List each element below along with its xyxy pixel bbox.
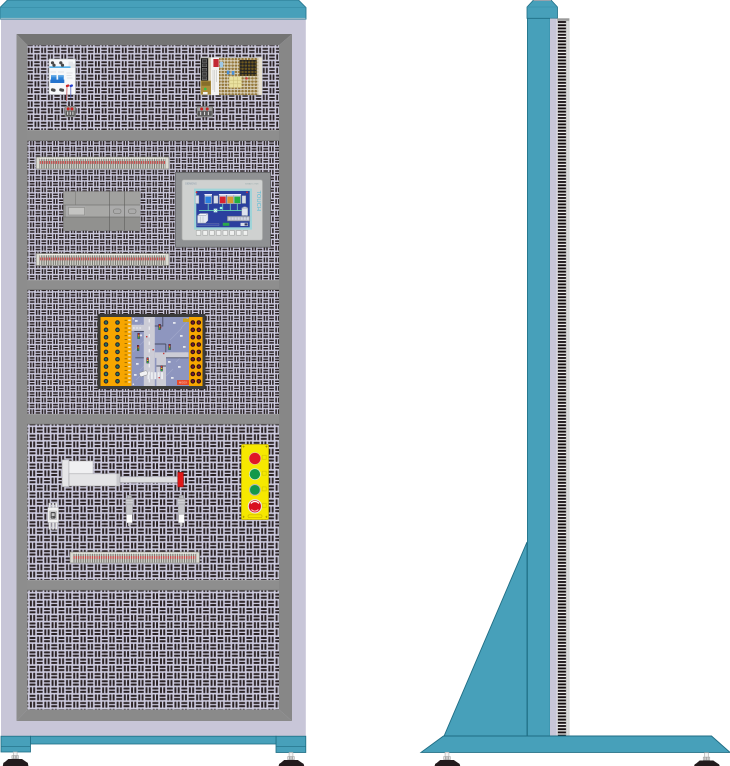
svg-text:TOUCH: TOUCH: [255, 191, 261, 212]
svg-text:SIMATIC HMI: SIMATIC HMI: [245, 183, 259, 186]
svg-text:MGGX: MGGX: [179, 381, 187, 385]
svg-text:SIEMENS: SIEMENS: [185, 182, 197, 186]
